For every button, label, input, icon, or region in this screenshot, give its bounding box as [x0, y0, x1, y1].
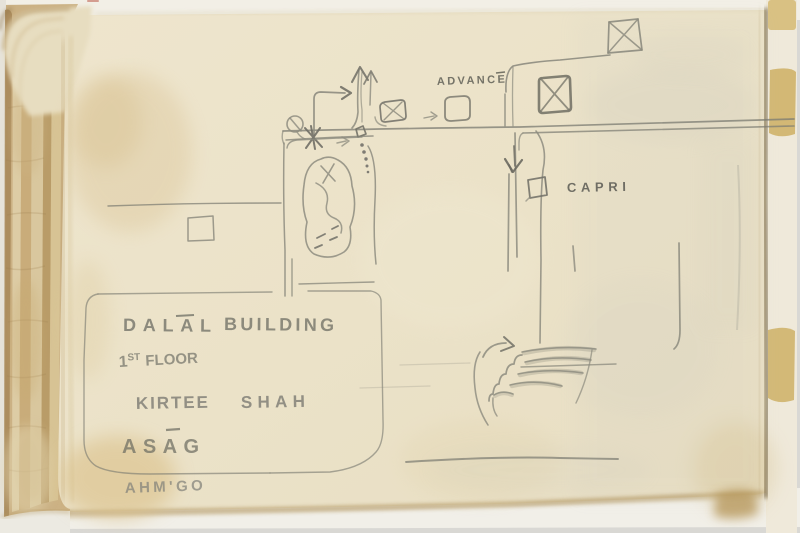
svg-text:KIRTEE: KIRTEE — [136, 393, 208, 413]
svg-text:ADVANCE: ADVANCE — [437, 74, 505, 88]
svg-text:CAPRI: CAPRI — [567, 179, 626, 195]
